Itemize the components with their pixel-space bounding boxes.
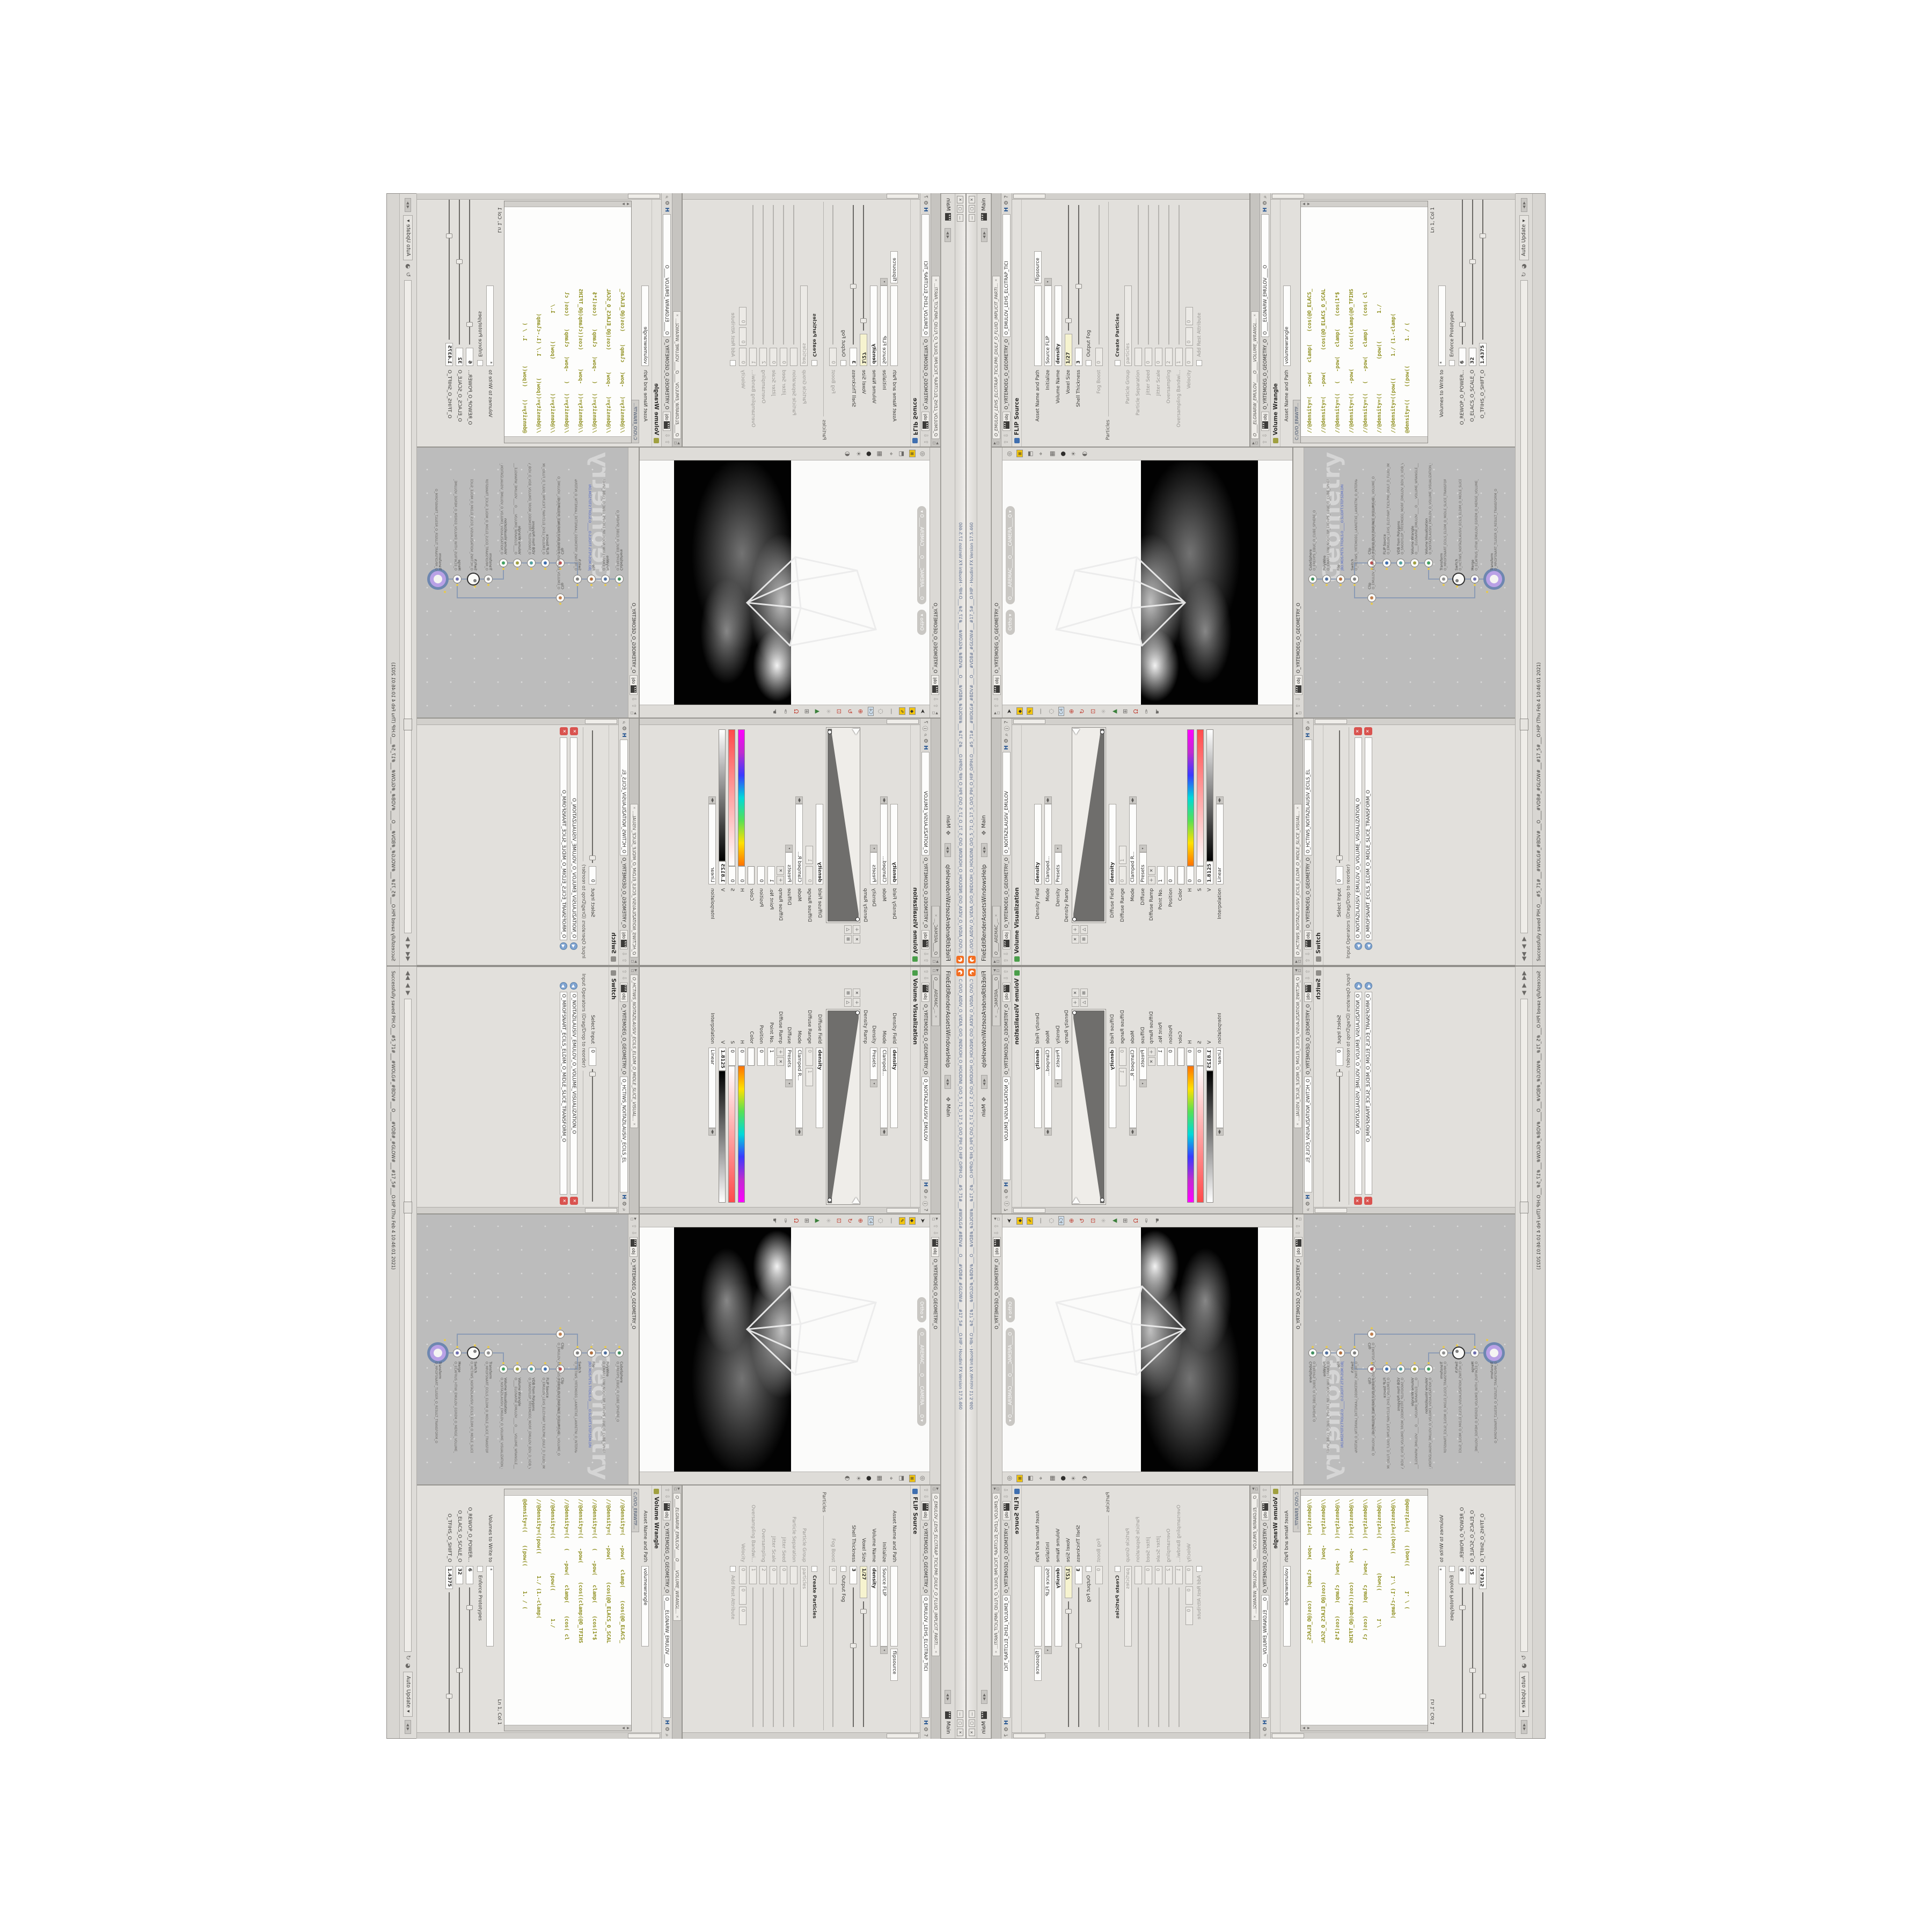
scale-tool-icon[interactable]: ⊡ xyxy=(1089,1218,1096,1223)
loop-icon[interactable]: ↻ xyxy=(405,1655,412,1660)
pin-icon[interactable]: ◎ xyxy=(1006,451,1013,457)
pane-collapse-chip[interactable]: ◀ ▶ xyxy=(945,228,952,242)
initialize-dropdown[interactable]: Source FLIP xyxy=(1044,1566,1052,1646)
gear-icon[interactable]: ⚙ xyxy=(621,726,627,731)
rewind-icon[interactable]: ◀◀ xyxy=(405,971,412,980)
help-icon[interactable]: ? xyxy=(923,721,928,723)
minimize-button[interactable]: — xyxy=(957,214,964,222)
select-tool-icon[interactable]: ➤ xyxy=(1006,709,1013,714)
search-icon[interactable]: ⌕ xyxy=(1004,1196,1009,1199)
jitter-scale-input[interactable]: 0 xyxy=(770,348,778,366)
asset-name-field[interactable] xyxy=(891,286,898,366)
network-node[interactable] xyxy=(499,1365,508,1373)
pin-icon[interactable]: ◎ xyxy=(1006,1476,1013,1481)
menu-item[interactable]: Render xyxy=(981,991,987,1011)
context-chip[interactable]: obj xyxy=(921,1501,930,1520)
breadcrumb[interactable]: O_YRTEMOEG_O_GEOMETRY_O xyxy=(994,603,1000,673)
help-icon[interactable]: ? xyxy=(1004,721,1009,723)
nav-up-icon[interactable]: ⇧ xyxy=(1262,1488,1268,1492)
search-icon[interactable]: ⌕ xyxy=(1305,721,1311,724)
timeline-knob[interactable] xyxy=(404,1202,413,1213)
ramp-handle[interactable] xyxy=(1072,917,1077,921)
shell-thickness-input[interactable]: 3 xyxy=(850,348,858,366)
network-node[interactable] xyxy=(1367,594,1376,602)
info-icon[interactable]: ⓘ xyxy=(1002,726,1011,731)
density-field-input[interactable]: density xyxy=(891,804,898,884)
pose-tool-icon[interactable]: ✳ xyxy=(1100,1218,1107,1223)
context-chip[interactable]: obj xyxy=(1304,983,1312,1002)
ramp-handle[interactable] xyxy=(828,730,832,734)
ramp-handle[interactable] xyxy=(1072,1011,1077,1015)
ramp-delete-button[interactable]: ✕ xyxy=(1072,989,1079,997)
desktop-selector[interactable]: ❖ Main xyxy=(945,1096,952,1117)
interpolation-dropdown[interactable]: Linear xyxy=(709,804,716,884)
info-icon[interactable]: ⓘ xyxy=(921,726,930,731)
nav-up-icon[interactable]: ⇧ xyxy=(1004,958,1009,963)
vex-code[interactable]: //@density=( -pow( clamp( (cos(@O_ELACS_… xyxy=(504,207,631,436)
pane-collapse-chip[interactable]: ◀ ▶ xyxy=(981,843,987,857)
help-icon[interactable]: ? xyxy=(1004,1734,1009,1737)
nav-up-icon[interactable]: ⇧ xyxy=(932,1224,938,1228)
menu-item[interactable]: Windows xyxy=(945,1029,952,1055)
dark-sphere-icon[interactable]: ● xyxy=(1059,451,1066,457)
ramp-add-button[interactable]: ＋ xyxy=(1072,998,1079,1007)
reorder-handle-icon[interactable]: ◀ xyxy=(1365,942,1372,950)
context-chip[interactable]: obj xyxy=(921,412,930,431)
ramp-flag-handle[interactable] xyxy=(852,1197,860,1203)
network-node[interactable] xyxy=(556,1330,565,1338)
desktop-selector[interactable]: ❖ Main xyxy=(980,815,987,836)
menu-item[interactable]: Edit xyxy=(981,941,987,952)
mode-dropdown[interactable]: Clamped... xyxy=(881,1048,888,1128)
asset-path-field[interactable]: flipsource xyxy=(891,1649,898,1681)
snap-magnet-icon[interactable]: Ω xyxy=(1132,1218,1139,1223)
timeline-slider[interactable] xyxy=(405,280,412,933)
secure-selection-icon[interactable]: ◆ xyxy=(1016,708,1023,715)
layout-grid-icon[interactable]: ⊞ xyxy=(1016,450,1023,458)
ramp-curve-area[interactable] xyxy=(826,727,860,923)
create-particles-checkbox[interactable] xyxy=(1115,1566,1121,1572)
jitter-scale-input[interactable]: 0 xyxy=(1155,348,1162,366)
pen-icon[interactable]: ✑ xyxy=(1143,709,1150,714)
diffuse-range-max[interactable]: 1 xyxy=(806,846,814,864)
breadcrumb[interactable]: O_YRTEMOEG_O_GEOMETRY_O xyxy=(1296,603,1301,673)
shell-thickness-input[interactable]: 3 xyxy=(1075,1566,1082,1584)
initialize-dropdown[interactable]: Source FLIP xyxy=(881,1566,888,1646)
title-bar[interactable]: C:/O/O_AIDIV_O_VIDIA_O/O_INIDUOH_O_HOUDI… xyxy=(955,967,965,1738)
close-tab-icon[interactable]: ✕ xyxy=(934,1015,938,1018)
network-node[interactable] xyxy=(1452,1346,1465,1359)
nav-down-icon[interactable]: ⇩ xyxy=(1262,433,1268,437)
hue-slider[interactable] xyxy=(738,1066,745,1203)
add-rest-checkbox[interactable] xyxy=(1196,360,1202,366)
saturation-slider[interactable] xyxy=(729,729,736,866)
snail-icon[interactable]: ◕ xyxy=(1520,1663,1527,1668)
ramp-add-button[interactable]: ＋ xyxy=(777,876,784,884)
search-icon[interactable]: ⌕ xyxy=(1305,1208,1311,1211)
pane-controls[interactable]: ▶□ xyxy=(674,440,680,445)
enforce-prototypes-checkbox[interactable] xyxy=(477,360,483,366)
search-icon[interactable]: ⌕ xyxy=(1262,195,1268,199)
network-node[interactable] xyxy=(1382,559,1391,567)
houdini-help-icon[interactable]: H xyxy=(923,1182,928,1187)
volumes-to-write-input[interactable]: * xyxy=(487,1566,494,1646)
network-node[interactable] xyxy=(541,1365,550,1373)
context-chip[interactable]: obj xyxy=(630,1237,638,1256)
pen-icon[interactable]: ✑ xyxy=(782,1218,789,1223)
pane-controls[interactable]: ▶□ xyxy=(933,958,939,964)
shift-slider[interactable] xyxy=(1482,1592,1483,1733)
saturation-slider[interactable] xyxy=(729,1066,736,1203)
position-input[interactable]: 0 xyxy=(1167,1048,1175,1066)
pane-tab[interactable]: O____AREMAC_...✕ xyxy=(992,906,1000,957)
value-slider[interactable] xyxy=(1206,1071,1213,1203)
node-path-field[interactable]: O_EMULOV_LEHS_ELCITRAP_TICI xyxy=(1002,214,1011,337)
delete-operator-icon[interactable]: ✕ xyxy=(570,727,578,735)
operator-name[interactable]: O_NOITAZILAUSIV_EMULOV_O_VOLUME_VISUALIZ… xyxy=(570,992,578,1195)
scale-input[interactable]: 32 xyxy=(456,348,464,366)
vex-code[interactable]: //@density=( -pow( clamp( (cos(@O_ELACS_… xyxy=(1301,1496,1428,1725)
network-node[interactable] xyxy=(513,1365,522,1373)
camera-tool-icon[interactable]: C4 xyxy=(1058,707,1064,716)
menu-item[interactable]: Assets xyxy=(981,903,987,921)
gear-icon[interactable]: ⚙ xyxy=(1004,200,1009,205)
nav-down-icon[interactable]: ⇩ xyxy=(923,433,928,437)
nav-up-icon[interactable]: ⇧ xyxy=(621,958,627,963)
point-no-input[interactable]: 1 xyxy=(1157,1048,1165,1066)
particle-group-input[interactable]: particles xyxy=(801,286,808,366)
network-node[interactable] xyxy=(601,1349,610,1357)
shift-input[interactable]: 1.4375 xyxy=(1479,343,1487,366)
operator-name[interactable]: O_MROFSNART_ECILS_ELDIM_O_MIDLE_SLICE_TR… xyxy=(560,737,568,940)
volume-name-input[interactable]: density xyxy=(1055,286,1062,366)
pane-tab[interactable]: O____AREMAC_...✕ xyxy=(992,975,1000,1026)
volume-name-input[interactable]: density xyxy=(1055,1566,1062,1646)
pin-icon[interactable]: ◎ xyxy=(919,451,926,457)
ramp-delete-button[interactable]: ✕ xyxy=(853,989,860,997)
select-input-slider[interactable] xyxy=(592,730,594,863)
ramp-flatten-button[interactable]: △ xyxy=(844,925,852,934)
info-icon[interactable]: ⓘ xyxy=(921,1201,930,1206)
camera-pill[interactable]: O____AREMAC____O____CAMERA____O ▾ xyxy=(1006,506,1015,604)
gear-icon[interactable]: ⚙ xyxy=(1262,201,1268,206)
mode-dropdown[interactable]: Clamped... xyxy=(1044,804,1052,884)
velocity-z-input[interactable]: 0 xyxy=(1185,307,1193,325)
context-chip[interactable]: obj xyxy=(1002,412,1011,431)
nav-down-icon[interactable]: ⇩ xyxy=(1296,1231,1301,1235)
diffuse-range-min[interactable]: 0 xyxy=(806,1048,814,1066)
paint-select-icon[interactable]: ✎ xyxy=(1027,708,1033,715)
menu-item[interactable]: File xyxy=(945,952,952,961)
output-fog-checkbox[interactable] xyxy=(1086,1566,1092,1572)
pane-scrollbar[interactable] xyxy=(640,719,920,725)
node-path-field[interactable]: O_EMULOV_LEHS_ELCITRAP_TICI xyxy=(921,1595,930,1718)
timeline-slider[interactable] xyxy=(405,999,412,1652)
position-input[interactable]: 0 xyxy=(1167,866,1175,884)
camera-tool-icon[interactable]: C4 xyxy=(868,707,874,716)
gear-icon[interactable]: ⚙ xyxy=(923,1727,928,1732)
camera-lock-icon[interactable]: ⌖ xyxy=(1037,452,1045,455)
snap-magnet-icon[interactable]: Ω xyxy=(1132,709,1139,713)
scale-slider[interactable] xyxy=(459,199,460,345)
nav-down-icon[interactable]: ⇩ xyxy=(621,976,627,980)
select-tool-icon[interactable]: ➤ xyxy=(919,709,926,714)
select-input-slider[interactable] xyxy=(1339,730,1340,863)
close-tab-icon[interactable]: ✕ xyxy=(934,914,938,917)
shade-icon[interactable]: ◐ xyxy=(844,451,851,457)
network-node[interactable] xyxy=(587,1349,596,1357)
network-node[interactable] xyxy=(1424,559,1433,567)
voxel-size-input[interactable]: 1/27 xyxy=(1065,1566,1072,1598)
scale-slider[interactable] xyxy=(459,1587,460,1733)
jitter-seed-input[interactable]: 0 xyxy=(780,348,788,366)
menu-item[interactable]: Help xyxy=(981,1055,987,1067)
volumes-to-write-input[interactable]: * xyxy=(1438,286,1446,366)
network-node[interactable] xyxy=(601,575,610,583)
node-path-field[interactable]: O_NOITAZILAUSIV_EMULOV xyxy=(921,752,930,855)
pane-tab[interactable]: O____ARTNAM_...✕ xyxy=(940,906,940,957)
pane-tab[interactable]: O_HCTIWS_NOITAZILAUSIV_ECILS_ELDIM_O_MID… xyxy=(630,804,638,958)
paint-select-icon[interactable]: ✎ xyxy=(1027,1217,1033,1225)
nav-down-icon[interactable]: ⇩ xyxy=(1004,952,1009,956)
viewport-canvas[interactable]: Ortho ▾ O____AREMAC____O____CAMERA____O … xyxy=(1002,460,1292,705)
pane-controls[interactable]: ▶□ xyxy=(1252,1487,1258,1492)
pane-controls[interactable]: ▶□ xyxy=(932,710,938,715)
ramp-delete-button[interactable]: ✕ xyxy=(1148,1057,1155,1066)
ramp-flatten-button[interactable]: △ xyxy=(844,998,852,1007)
options-icon[interactable]: ▦ xyxy=(1049,1475,1056,1481)
density-ramp-widget[interactable]: ✕ ＋ ⊞ △ xyxy=(825,967,861,1207)
menu-item[interactable]: Render xyxy=(981,921,987,941)
breadcrumb[interactable]: O_YRTEMOEG_O_GEOMETRY_O xyxy=(994,1259,1000,1329)
pose-tool-icon[interactable]: ✳ xyxy=(1100,709,1107,714)
interpolation-dropdown[interactable]: Linear xyxy=(1216,804,1224,884)
velocity-x-input[interactable]: 0 xyxy=(740,348,747,366)
ramp-curve-area[interactable] xyxy=(1072,727,1106,923)
search-icon[interactable]: ⌕ xyxy=(621,1208,627,1211)
loop-icon[interactable]: ↻ xyxy=(1520,272,1527,277)
minimize-button[interactable]: — xyxy=(957,1710,964,1718)
snap-magnet-icon[interactable]: Ω xyxy=(793,709,800,713)
network-node[interactable] xyxy=(513,559,522,567)
nav-down-icon[interactable]: ⇩ xyxy=(1305,952,1311,956)
rewind-icon[interactable]: ◀◀ xyxy=(1520,952,1527,961)
asset-name-field[interactable]: volumewrangle xyxy=(1283,286,1291,366)
nav-up-icon[interactable]: ⇧ xyxy=(1004,969,1009,974)
search-icon[interactable]: ⌕ xyxy=(923,1196,928,1199)
take-selector[interactable]: Main xyxy=(945,198,951,221)
ramp-grid-button[interactable]: ⊞ xyxy=(1080,935,1088,943)
velocity-z-input[interactable]: 0 xyxy=(740,307,747,325)
asset-name-field[interactable] xyxy=(1034,1566,1042,1646)
gear-icon[interactable]: ⚙ xyxy=(664,1726,670,1731)
menu-item[interactable]: Render xyxy=(945,921,952,941)
code-scrollbar[interactable]: ▲▼ xyxy=(504,201,631,207)
gear-icon[interactable]: ⚙ xyxy=(1004,738,1009,743)
gear-icon[interactable]: ⚙ xyxy=(1004,1189,1009,1194)
nav-up-icon[interactable]: ⇧ xyxy=(1305,969,1311,974)
secure-selection-icon[interactable]: ◆ xyxy=(909,708,916,715)
nav-up-icon[interactable]: ⇧ xyxy=(664,1488,670,1492)
breadcrumb[interactable]: O_YRTEMOEG_O_GEOMETRY_O xyxy=(1004,858,1009,928)
info-icon[interactable]: ⓘ xyxy=(1002,1201,1011,1206)
camera-lock-icon[interactable]: ⌖ xyxy=(887,1476,895,1480)
density-ramp-widget[interactable]: ✕ ＋ ⊞ △ xyxy=(825,725,861,965)
density-ramp-widget[interactable]: ✕ ＋ ⊞ △ xyxy=(1071,725,1107,965)
pane-scrollbar[interactable] xyxy=(1271,193,1516,200)
gear-icon[interactable]: ⚙ xyxy=(923,1189,928,1194)
fog-boost-input[interactable]: 0 xyxy=(1095,1566,1103,1584)
node-path-field[interactable]: O____ELGNARW_EMULOV____O xyxy=(663,1595,671,1718)
context-chip[interactable]: obj xyxy=(1294,1237,1302,1256)
shift-input[interactable]: 1.4375 xyxy=(446,343,453,366)
value-input[interactable]: 1.8125 xyxy=(719,861,726,884)
menu-item[interactable]: Render xyxy=(945,991,952,1011)
network-node[interactable] xyxy=(1483,1342,1505,1364)
timeline-knob[interactable] xyxy=(404,719,413,730)
secure-selection-icon[interactable]: ◆ xyxy=(909,1217,916,1225)
title-bar[interactable]: C:/O/O_AIDIV_O_VIDIA_O/O_INIDUOH_O_HOUDI… xyxy=(967,194,977,965)
velocity-z-input[interactable]: 0 xyxy=(1185,1607,1193,1625)
network-node[interactable] xyxy=(1452,573,1465,586)
nav-up-icon[interactable]: ⇧ xyxy=(631,704,636,708)
asset-name-field[interactable]: volumewrangle xyxy=(642,1566,649,1646)
pane-controls[interactable]: ▶□ xyxy=(993,968,999,974)
pane-tab[interactable]: O_NOITAZILAUSIV...✕ xyxy=(931,906,932,957)
ramp-grid-button[interactable]: ⊞ xyxy=(1080,989,1088,997)
velocity-y-input[interactable]: 0 xyxy=(740,1586,747,1605)
value-slider[interactable] xyxy=(719,1071,726,1203)
context-chip[interactable]: obj xyxy=(993,1237,1001,1256)
network-node[interactable] xyxy=(467,1346,480,1359)
pane-collapse-chip[interactable]: ◀ ▶ xyxy=(1521,198,1527,212)
network-canvas[interactable]: Geometry CubeSphere O_EREHPS_EBUC_O_CUBE… xyxy=(1304,448,1516,718)
network-node[interactable] xyxy=(541,559,550,567)
operator-name[interactable]: O_MROFSNART_ECILS_ELDIM_O_MIDLE_SLICE_TR… xyxy=(1365,737,1372,940)
asset-path-field[interactable]: flipsource xyxy=(1034,251,1042,283)
nav-up-icon[interactable]: ⇧ xyxy=(932,704,938,708)
view-cube-icon[interactable]: ⬒ xyxy=(898,1475,905,1481)
hand-icon[interactable]: ☛ xyxy=(1154,1218,1161,1224)
snap-window-icon[interactable]: ⊞ xyxy=(803,709,810,714)
breadcrumb[interactable]: O_YRTEMOEG_O_GEOMETRY_O xyxy=(621,858,627,928)
select-tool-icon[interactable]: ➤ xyxy=(1006,1218,1013,1223)
network-node[interactable] xyxy=(1322,575,1331,583)
network-node[interactable] xyxy=(1410,559,1419,567)
reorder-handle-icon[interactable]: ◀ xyxy=(1365,982,1372,990)
breadcrumb[interactable]: O_YRTEMOEG_O_GEOMETRY_O xyxy=(933,1259,938,1329)
menu-item[interactable]: Edit xyxy=(981,980,987,991)
menu-item[interactable]: File xyxy=(981,952,987,961)
ramp-add-button[interactable]: ＋ xyxy=(1148,1048,1155,1056)
select-input-slider[interactable] xyxy=(592,1069,594,1202)
context-chip[interactable]: obj xyxy=(993,675,1001,694)
pin-icon[interactable]: ◎ xyxy=(919,1476,926,1481)
pane-tab[interactable]: O_HCTIWS_NOITAZILAUSIV_ECILS_ELDIM_O_MID… xyxy=(1294,975,1302,1129)
pane-scrollbar[interactable] xyxy=(683,1732,920,1739)
voxel-size-slider[interactable] xyxy=(863,205,865,331)
nav-down-icon[interactable]: ⇩ xyxy=(932,697,938,701)
pane-controls[interactable]: ▶□ xyxy=(932,1217,938,1222)
interpolation-dropdown[interactable]: Linear xyxy=(1216,1048,1224,1128)
camera-tool-icon[interactable]: C4 xyxy=(1058,1216,1064,1225)
particle-separation-input[interactable] xyxy=(791,348,798,366)
node-path-field[interactable]: O____ELGNARW_EMULOV____O xyxy=(1261,214,1269,337)
select-input-field[interactable]: 0 xyxy=(589,1048,597,1066)
maximize-button[interactable]: ▢ xyxy=(957,205,964,213)
nav-up-icon[interactable]: ⇧ xyxy=(1305,958,1311,963)
shell-thickness-slider[interactable] xyxy=(853,1587,854,1727)
nav-down-icon[interactable]: ⇩ xyxy=(1004,433,1009,437)
vex-code[interactable]: //@density=( -pow( clamp( (cos(@O_ELACS_… xyxy=(1301,207,1428,436)
delete-operator-icon[interactable]: ✕ xyxy=(570,1197,578,1205)
ramp-delete-button[interactable]: ✕ xyxy=(1148,866,1155,875)
pane-controls[interactable]: ▶□ xyxy=(1296,1217,1301,1222)
breadcrumb[interactable]: O_YRTEMOEG_O_GEOMETRY_O xyxy=(664,1523,670,1593)
houdini-help-icon[interactable]: H xyxy=(923,745,928,750)
position-input[interactable]: 0 xyxy=(758,866,765,884)
particle-separation-input[interactable] xyxy=(791,1566,798,1584)
view-cube-icon[interactable]: ⬒ xyxy=(898,451,905,456)
nav-down-icon[interactable]: ⇩ xyxy=(1004,1494,1009,1498)
close-button[interactable]: ✕ xyxy=(969,196,975,203)
output-fog-checkbox[interactable] xyxy=(1086,360,1092,366)
ramp-curve-area[interactable] xyxy=(826,1009,860,1205)
projection-pill[interactable]: Ortho ▾ xyxy=(1006,1297,1015,1322)
camera-pill[interactable]: O____AREMAC____O____CAMERA____O ▾ xyxy=(917,506,926,604)
camera-lock-icon[interactable]: ⌖ xyxy=(887,452,895,455)
shift-input[interactable]: 1.4375 xyxy=(1479,1566,1487,1589)
saturation-input[interactable]: 0 xyxy=(1196,1048,1204,1066)
play-icon[interactable]: ▶ xyxy=(405,936,412,941)
pane-scrollbar[interactable] xyxy=(416,1207,618,1213)
pane-controls[interactable]: ▶□ xyxy=(1252,440,1258,445)
asset-path-field[interactable]: flipsource xyxy=(891,251,898,283)
pane-scrollbar[interactable] xyxy=(416,1732,661,1739)
pane-tab[interactable]: O____AREMAC_...✕ xyxy=(932,906,940,957)
point-no-input[interactable]: 1 xyxy=(768,1048,775,1066)
play-reverse-icon[interactable]: ◀ xyxy=(1520,983,1527,987)
light-icon[interactable]: ☀ xyxy=(1070,1476,1077,1481)
menu-item[interactable]: Assets xyxy=(981,1011,987,1029)
saturation-input[interactable]: 0 xyxy=(728,866,736,884)
maximize-button[interactable]: ▢ xyxy=(957,1719,964,1727)
move-tool-icon[interactable]: ⊕ xyxy=(857,709,864,714)
vex-code[interactable]: //@density=( -pow( clamp( (cos(@O_ELACS_… xyxy=(504,1496,631,1725)
shell-thickness-slider[interactable] xyxy=(1078,205,1079,345)
gear-icon[interactable]: ⚙ xyxy=(1305,1201,1311,1206)
nav-up-icon[interactable]: ⇧ xyxy=(621,969,627,974)
pane-controls[interactable]: ▶□ xyxy=(993,1487,999,1492)
gear-icon[interactable]: ⚙ xyxy=(664,201,670,206)
ramp-flag-handle[interactable] xyxy=(1072,729,1080,735)
close-button[interactable]: ✕ xyxy=(957,1729,964,1736)
node-path-field[interactable]: O_EMULOV_LEHS_ELCITRAP_TICI xyxy=(1002,1595,1011,1718)
help-icon[interactable]: ? xyxy=(923,1209,928,1211)
context-chip[interactable]: obj xyxy=(1002,983,1011,1002)
add-rest-checkbox[interactable] xyxy=(1196,1566,1202,1572)
context-chip[interactable]: obj xyxy=(663,1501,671,1520)
velocity-y-input[interactable]: 0 xyxy=(1185,1586,1193,1605)
search-icon[interactable]: ⌕ xyxy=(1004,733,1009,736)
volumes-to-write-input[interactable]: * xyxy=(1438,1566,1446,1646)
ramp-add-button[interactable]: ＋ xyxy=(1148,876,1155,884)
light-icon[interactable]: ☀ xyxy=(855,451,862,457)
vex-code-editor[interactable]: //@density=( -pow( clamp( (cos(@O_ELACS_… xyxy=(504,1489,632,1731)
axis-icon[interactable]: ▲ xyxy=(814,1218,821,1223)
add-rest-checkbox[interactable] xyxy=(730,1566,736,1572)
node-path-field[interactable]: O_NOITAZILAUSIV_EMULOV xyxy=(1002,1077,1011,1180)
